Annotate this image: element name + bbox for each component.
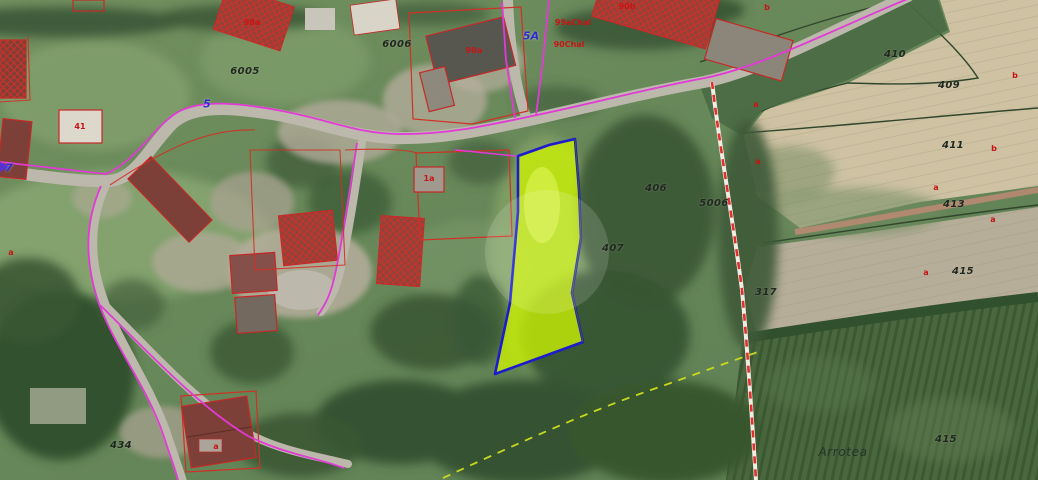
aerial-map[interactable]: 6005600641040941141341540650064073174344… (0, 0, 1038, 480)
watermark-circle (485, 190, 609, 314)
map-canvas (0, 0, 1038, 480)
